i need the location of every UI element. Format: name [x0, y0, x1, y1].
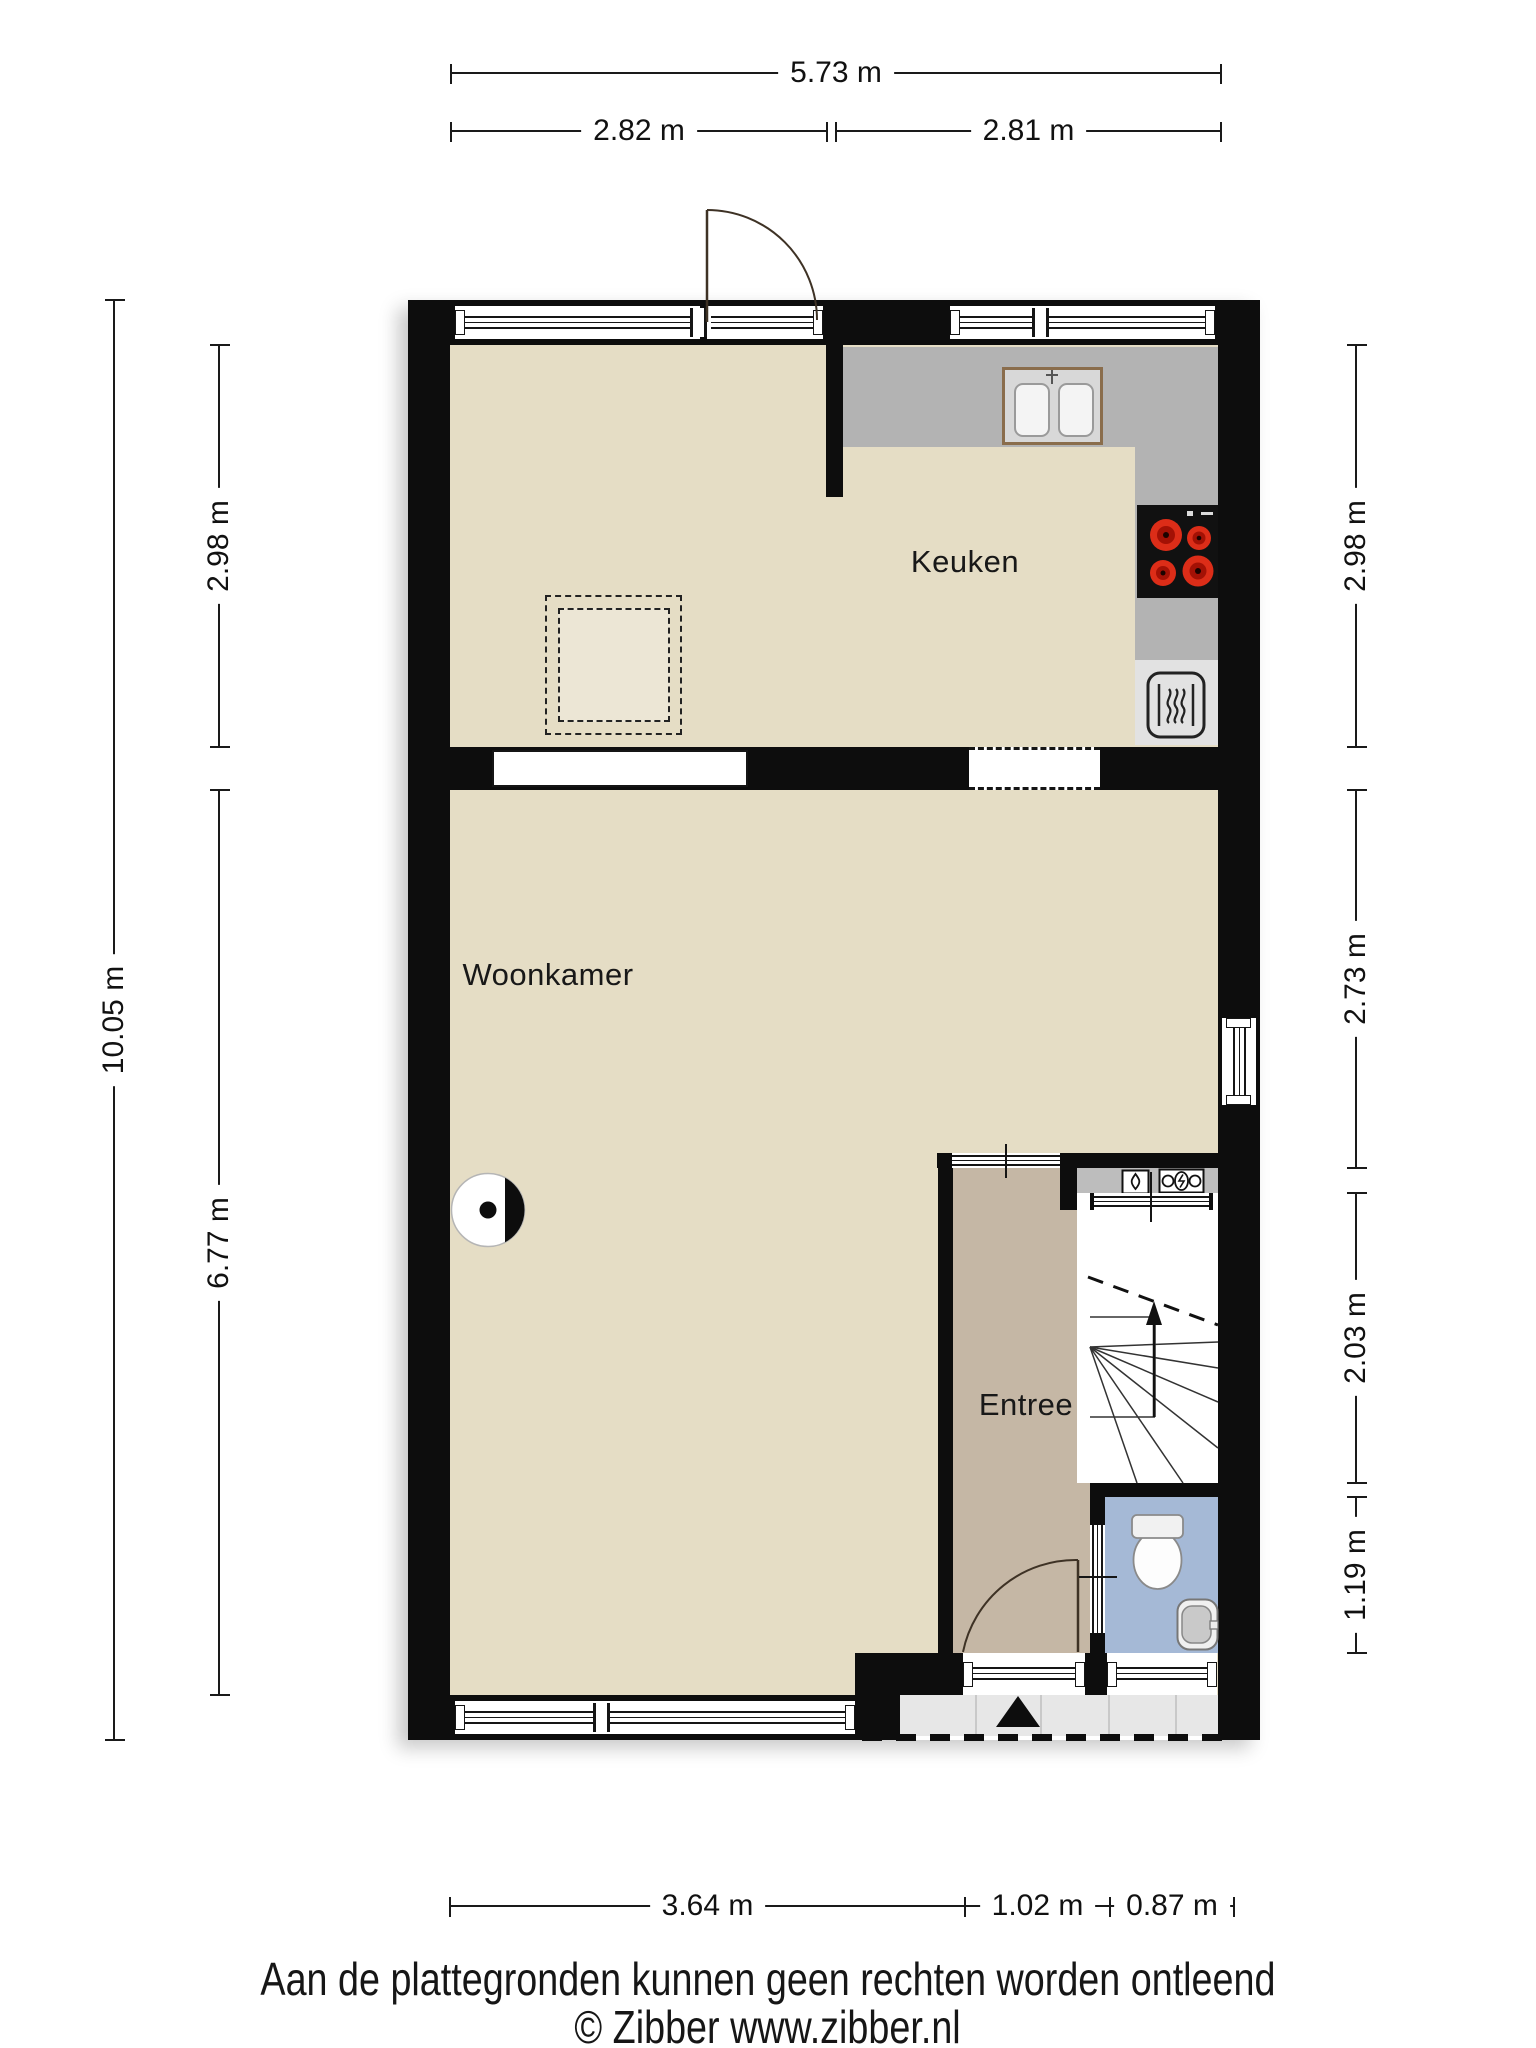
dim-top-left: 2.82 m — [451, 130, 827, 132]
wall-hall-stub — [1060, 1153, 1077, 1210]
wall-toilet-left-upper — [1090, 1497, 1105, 1525]
dim-right-kitchen-label: 2.98 m — [1337, 488, 1375, 604]
stairs — [1086, 1208, 1220, 1492]
sink-basin-left — [1014, 383, 1050, 437]
passage-opening — [969, 747, 1100, 790]
sink-faucet-bar — [1046, 374, 1058, 376]
dim-top-right-label: 2.81 m — [971, 112, 1087, 150]
sink-faucet — [1051, 370, 1053, 384]
sink-basin-right — [1058, 383, 1094, 437]
dim-bottom-entry-label: 1.02 m — [980, 1887, 1096, 1925]
window-living-bottom — [455, 1701, 855, 1734]
room-label-living: Woonkamer — [462, 957, 633, 993]
dim-right-kitchen: 2.98 m — [1355, 345, 1357, 747]
dim-right-hall: 2.03 m — [1355, 1193, 1357, 1483]
window-living-right — [1222, 1018, 1256, 1105]
oven-icon — [1145, 670, 1207, 740]
porch-dashed-edge — [862, 1734, 1222, 1741]
dim-left-kitchen: 2.98 m — [218, 345, 220, 747]
footer-disclaimer-line: Aan de plattegronden kunnen geen rechten… — [0, 1952, 1536, 2006]
window-kitchen-top-left — [455, 306, 700, 339]
frontdoor-swing-icon — [950, 1540, 1090, 1660]
footer-copyright: © Zibber www.zibber.nl — [575, 2000, 961, 2048]
dim-top-total-label: 5.73 m — [778, 54, 894, 92]
window-kitchen-top-right — [950, 306, 1215, 339]
window-toilet-bottom — [1107, 1653, 1217, 1695]
footer-copyright-line: © Zibber www.zibber.nl — [0, 2000, 1536, 2048]
dim-right-living: 2.73 m — [1355, 790, 1357, 1168]
dim-bottom-entry: 1.02 m — [965, 1905, 1110, 1907]
room-label-kitchen: Keuken — [911, 544, 1019, 580]
dim-top-total: 5.73 m — [451, 72, 1221, 74]
dim-left-living-label: 6.77 m — [200, 1185, 238, 1301]
dim-left-kitchen-label: 2.98 m — [200, 488, 238, 604]
dim-left-total-label: 10.05 m — [95, 954, 133, 1086]
dim-right-living-label: 2.73 m — [1337, 921, 1375, 1037]
washbasin-icon — [1176, 1598, 1220, 1652]
dim-right-toilet: 1.19 m — [1355, 1497, 1357, 1653]
dim-top-left-label: 2.82 m — [581, 112, 697, 150]
dim-bottom-living: 3.64 m — [450, 1905, 965, 1907]
dim-top-right: 2.81 m — [836, 130, 1221, 132]
dim-left-total: 10.05 m — [113, 300, 115, 1740]
skylight-outline-inner — [558, 608, 670, 722]
dim-right-toilet-label: 1.19 m — [1337, 1517, 1375, 1633]
porch — [900, 1695, 1218, 1736]
backdoor-swing-icon — [700, 205, 830, 345]
dim-left-living: 6.77 m — [218, 790, 220, 1695]
door-toilet-tick — [1079, 1576, 1117, 1578]
toilet-icon — [1125, 1508, 1195, 1598]
room-label-hall: Entree — [979, 1387, 1073, 1423]
door-hall-living-tick — [1005, 1144, 1007, 1178]
dim-bottom-toilet: 0.87 m — [1110, 1905, 1234, 1907]
wall-left — [408, 300, 450, 1740]
dim-bottom-toilet-label: 0.87 m — [1114, 1887, 1230, 1925]
wall-kitchen-stub — [826, 345, 843, 497]
wall-toilet-left-lower — [1090, 1633, 1105, 1693]
dim-right-hall-label: 2.03 m — [1337, 1280, 1375, 1396]
sink-icon — [1002, 367, 1103, 445]
door-toilet — [1090, 1525, 1105, 1633]
hob-icon — [1135, 503, 1220, 600]
chimney-icon — [448, 1170, 528, 1250]
wall-bottom-corner — [855, 1653, 900, 1740]
footer-disclaimer: Aan de plattegronden kunnen geen rechten… — [260, 1952, 1275, 2006]
floorplan-page: 5.73 m 2.82 m 2.81 m 10.05 m 2.98 m 6.77… — [0, 0, 1536, 2048]
dim-bottom-living-label: 3.64 m — [650, 1887, 766, 1925]
serving-window — [492, 750, 748, 787]
entrance-arrow-icon — [996, 1696, 1040, 1727]
